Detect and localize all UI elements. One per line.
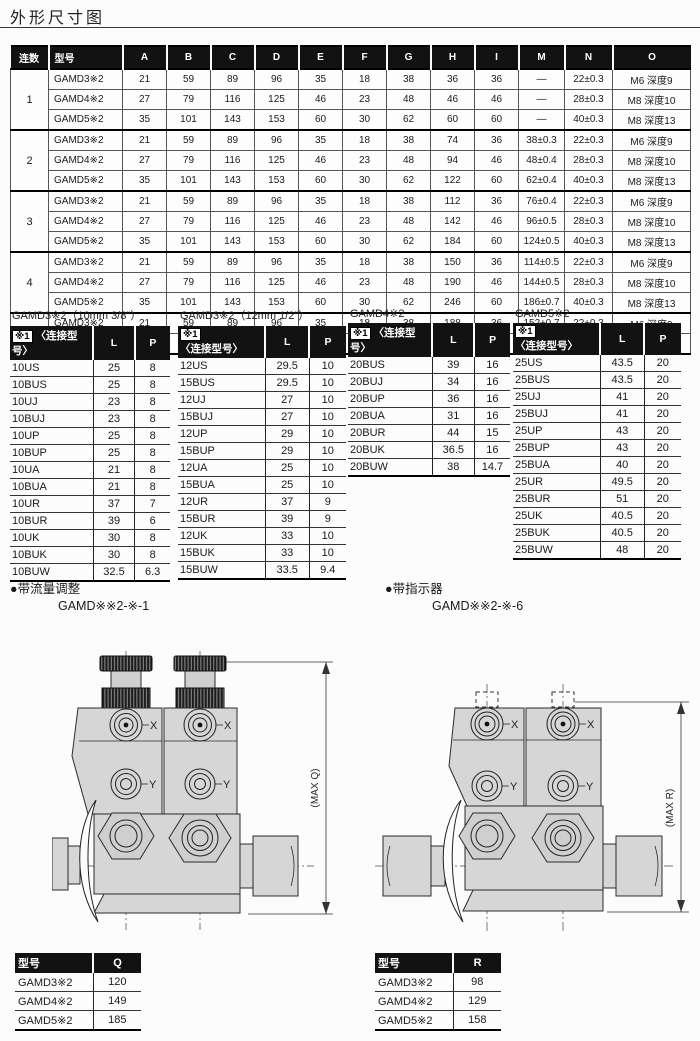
value-l: 29.5 [265,375,309,392]
bottom-row: GAMD5※2158 [375,1011,501,1031]
connector-row: 25BUR5120 [513,491,681,508]
value-p: 10 [309,528,346,545]
value-cell: M8 深度13 [613,110,691,131]
value-p: 16 [474,357,510,374]
connector-table-title: GAMD5※2 [515,307,681,320]
connector-row: 10UA218 [10,462,170,479]
value-cell: 79 [167,90,211,110]
value-cell: 158 [453,1011,501,1031]
value-p: 10 [309,426,346,443]
value-cell: 60 [299,110,343,131]
connector-header-row: ※1〈连接型号〉LP [178,326,346,358]
model-cell: GAMD4※2 [49,273,123,293]
value-p: 10 [309,375,346,392]
connector-model: 25BUA [513,457,600,474]
value-cell: 22±0.3 [565,252,613,273]
col-header-p: P [474,323,510,357]
value-cell: 36 [475,191,519,212]
value-p: 10 [309,443,346,460]
value-p: 10 [309,545,346,562]
svg-text:Y: Y [149,779,157,791]
value-cell: 46 [299,151,343,171]
value-l: 44 [432,425,474,442]
value-p: 8 [135,462,170,479]
connector-model: 10BUP [10,445,93,462]
value-p: 16 [474,408,510,425]
column-header: F [343,46,387,69]
manifold-skirt [463,890,603,911]
value-cell: M6 深度9 [613,130,691,151]
connector-model: 15BUA [178,477,265,494]
value-cell: 62 [387,171,431,192]
connector-row: 15BUP2910 [178,443,346,460]
dim-header: Q [93,953,141,973]
value-cell: 60 [431,110,475,131]
bottom-row: GAMD4※2129 [375,992,501,1011]
main-table-header-row: 连数型号ABCDEFGHIMNO [11,46,691,69]
value-cell: 21 [123,130,167,151]
value-cell: M8 深度10 [613,151,691,171]
value-l: 25 [93,360,135,377]
table-row: GAMD4※227791161254623481424696±0.528±0.3… [11,212,691,232]
connector-row: 12US29.510 [178,358,346,375]
max-r-table: 型号RGAMD3※298GAMD4※2129GAMD5※2158 [375,953,501,1031]
value-cell: 30 [343,171,387,192]
value-cell: 143 [211,171,255,192]
value-p: 8 [135,530,170,547]
value-l: 48 [600,542,644,560]
value-p: 8 [135,445,170,462]
adjust-knob-icon [174,656,226,708]
connector-row: 25BUP4320 [513,440,681,457]
column-header: M [519,46,565,69]
value-cell: 96 [255,69,299,90]
svg-text:X: X [224,720,232,732]
connector-model: 15BUW [178,562,265,580]
table-row: GAMD4※22779116125462348944648±0.428±0.3M… [11,151,691,171]
value-cell: 36 [431,69,475,90]
connector-row: 15BUR399 [178,511,346,528]
connector-model: 15BUJ [178,409,265,426]
value-l: 40 [600,457,644,474]
value-cell: 36 [475,252,519,273]
table-row: 4GAMD3※22159899635183815036114±0.522±0.3… [11,252,691,273]
dim-label-q: (MAX Q) [310,769,321,808]
value-cell: 27 [123,90,167,110]
group-count-cell: 2 [11,130,49,191]
col-header-p: P [135,326,170,360]
value-cell: 153 [255,232,299,253]
connector-row: 20BUW3814.7 [348,459,510,477]
value-cell: 22±0.3 [565,69,613,90]
connector-model: 10BUS [10,377,93,394]
value-l: 37 [265,494,309,511]
value-l: 36.5 [432,442,474,459]
connector-model: 10UP [10,428,93,445]
connector-model: 10UJ [10,394,93,411]
model-cell: GAMD4※2 [15,992,93,1011]
connector-table-title: GAMD4※2 [350,307,510,320]
value-cell: 38±0.3 [519,130,565,151]
value-cell: 143 [211,232,255,253]
value-p: 16 [474,442,510,459]
value-p: 20 [644,525,681,542]
connector-model: 20BUJ [348,374,432,391]
variant-label: 带流量调整 [18,582,81,596]
value-cell: 101 [167,171,211,192]
value-l: 36 [432,391,474,408]
value-p: 20 [644,423,681,440]
value-l: 49.5 [600,474,644,491]
connector-row: 25US43.520 [513,355,681,372]
adjust-knob-icon [100,656,152,708]
connector-row: 10UK308 [10,530,170,547]
drawing-flow-adjust: (MAX Q) [52,648,347,940]
connector-row: 20BUJ3416 [348,374,510,391]
value-cell: 21 [123,191,167,212]
value-cell: 18 [343,130,387,151]
connector-row: 25BUS43.520 [513,372,681,389]
value-p: 7 [135,496,170,513]
value-cell: 116 [211,151,255,171]
column-header: E [299,46,343,69]
value-p: 8 [135,479,170,496]
value-cell: 98 [453,973,501,992]
connector-table: GAMD3※2（12mm 1/2"）※1〈连接型号〉LP12US29.51015… [178,307,346,580]
connector-model: 12UJ [178,392,265,409]
connector-row: 10US258 [10,360,170,377]
value-cell: M8 深度13 [613,232,691,253]
connector-model-header: ※1〈连接型号〉 [513,323,600,355]
col-header-l: L [93,326,135,360]
value-cell: 35 [299,191,343,212]
value-cell: 190 [431,273,475,293]
connector-model: 20BUW [348,459,432,477]
pipe-fitting [616,836,662,896]
connector-table: GAMD5※2※1〈连接型号〉LP25US43.52025BUS43.52025… [513,307,681,560]
value-cell: M8 深度13 [613,171,691,192]
value-p: 10 [309,409,346,426]
bottom-row: GAMD3※298 [375,973,501,992]
value-l: 37 [93,496,135,513]
value-cell: 149 [93,992,141,1011]
value-cell: 18 [343,252,387,273]
connector-model: 15BUK [178,545,265,562]
connector-row: 12UK3310 [178,528,346,545]
connector-model: 25US [513,355,600,372]
value-l: 27 [265,392,309,409]
value-cell: 23 [343,151,387,171]
connector-model: 10BUJ [10,411,93,428]
connector-row: 12UJ2710 [178,392,346,409]
value-cell: 96 [255,130,299,151]
connector-row: 12UR379 [178,494,346,511]
group-count-cell: 4 [11,252,49,313]
connector-row: 15BUW33.59.4 [178,562,346,580]
footnote-ref: ※1 [350,327,371,340]
pipe-fitting [383,836,431,896]
connector-row: 20BUA3116 [348,408,510,425]
value-cell: 59 [167,252,211,273]
value-cell: 46 [475,273,519,293]
connector-model: 12UR [178,494,265,511]
value-cell: M6 深度9 [613,191,691,212]
value-cell: 27 [123,151,167,171]
connector-model: 10UA [10,462,93,479]
value-l: 29.5 [265,358,309,375]
connector-model: 20BUK [348,442,432,459]
value-cell: 60 [299,171,343,192]
value-l: 29 [265,443,309,460]
model-cell: GAMD4※2 [49,90,123,110]
value-l: 31 [432,408,474,425]
connector-row: 25BUW4820 [513,542,681,560]
connector-row: 10BUA218 [10,479,170,496]
bottom-header-row: 型号R [375,953,501,973]
bottom-header-row: 型号Q [15,953,141,973]
value-cell: 89 [211,252,255,273]
connector-model: 10UK [10,530,93,547]
value-cell: 21 [123,69,167,90]
value-cell: 27 [123,273,167,293]
value-cell: 35 [299,130,343,151]
svg-text:X: X [587,719,595,731]
connector-row: 12UP2910 [178,426,346,443]
model-cell: GAMD3※2 [49,191,123,212]
value-cell: 124±0.5 [519,232,565,253]
value-p: 10 [309,477,346,494]
model-cell: GAMD4※2 [49,212,123,232]
connector-model: 12UP [178,426,265,443]
value-cell: 48 [387,273,431,293]
value-cell: 38 [387,191,431,212]
value-cell: 22±0.3 [565,191,613,212]
value-p: 6.3 [135,564,170,582]
value-cell: 79 [167,212,211,232]
value-p: 15 [474,425,510,442]
value-cell: 62±0.4 [519,171,565,192]
value-cell: 38 [387,130,431,151]
value-p: 20 [644,474,681,491]
connector-model: 20BUP [348,391,432,408]
value-cell: 60 [475,232,519,253]
value-cell: 35 [123,171,167,192]
svg-text:Y: Y [586,781,594,793]
value-l: 41 [600,406,644,423]
value-p: 8 [135,360,170,377]
value-p: 16 [474,391,510,408]
value-cell: 76±0.4 [519,191,565,212]
value-cell: M8 深度10 [613,273,691,293]
connector-model: 25BUK [513,525,600,542]
value-cell: 144±0.5 [519,273,565,293]
value-cell: 60 [299,232,343,253]
value-p: 8 [135,428,170,445]
connector-model: 15BUP [178,443,265,460]
value-cell: 36 [475,69,519,90]
value-p: 16 [474,374,510,391]
connector-model: 10BUR [10,513,93,530]
value-cell: M8 深度10 [613,90,691,110]
connector-row: 25UP4320 [513,423,681,440]
bottom-row: GAMD4※2149 [15,992,141,1011]
bottom-row: GAMD3※2120 [15,973,141,992]
value-p: 8 [135,411,170,428]
value-cell: 94 [431,151,475,171]
value-p: 14.7 [474,459,510,477]
value-cell: 40±0.3 [565,110,613,131]
dim-header: R [453,953,501,973]
connector-model: 20BUS [348,357,432,374]
value-l: 33 [265,528,309,545]
col-header-l: L [265,326,309,358]
connector-model: 20BUR [348,425,432,442]
value-cell: 22±0.3 [565,130,613,151]
svg-text:X: X [511,719,519,731]
connector-model: 10US [10,360,93,377]
connector-model: 12UK [178,528,265,545]
bottom-row: GAMD5※2185 [15,1011,141,1031]
value-p: 20 [644,491,681,508]
column-header: B [167,46,211,69]
connector-table: GAMD4※2※1〈连接型号〉LP20BUS391620BUJ341620BUP… [348,307,510,477]
connector-row: 25UJ4120 [513,389,681,406]
connector-model: 25BUR [513,491,600,508]
connector-model: 25UK [513,508,600,525]
value-cell: 184 [431,232,475,253]
value-cell: 89 [211,69,255,90]
value-cell: 96 [255,252,299,273]
value-p: 8 [135,547,170,564]
connector-model: 25UJ [513,389,600,406]
table-row: GAMD4※227791161254623484646—28±0.3M8 深度1… [11,90,691,110]
value-p: 20 [644,372,681,389]
value-cell: 46 [475,212,519,232]
connector-row: 25UK40.520 [513,508,681,525]
value-l: 39 [93,513,135,530]
value-l: 32.5 [93,564,135,582]
model-cell: GAMD5※2 [15,1011,93,1031]
value-cell: 143 [211,110,255,131]
value-cell: 23 [343,90,387,110]
connector-model: 25BUJ [513,406,600,423]
footnote-ref: ※1 [515,325,536,338]
connector-model: 10UR [10,496,93,513]
value-p: 8 [135,377,170,394]
value-cell: 79 [167,273,211,293]
footnote-ref: ※1 [12,330,33,343]
value-l: 40.5 [600,525,644,542]
column-header: 型号 [49,46,123,69]
value-cell: 101 [167,110,211,131]
connector-row: 20BUS3916 [348,357,510,374]
table-row: GAMD5※2351011431536030626060—40±0.3M8 深度… [11,110,691,131]
value-p: 20 [644,457,681,474]
value-cell: 28±0.3 [565,151,613,171]
value-l: 33 [265,545,309,562]
connector-row: 25UR49.520 [513,474,681,491]
value-cell: 28±0.3 [565,90,613,110]
value-l: 33.5 [265,562,309,580]
value-p: 10 [309,460,346,477]
value-l: 25 [265,460,309,477]
model-cell: GAMD3※2 [15,973,93,992]
value-cell: 153 [255,171,299,192]
connector-table-title: GAMD3※2（12mm 1/2"） [180,307,346,323]
value-cell: 153 [255,110,299,131]
connector-model: 15BUR [178,511,265,528]
value-cell: 35 [299,252,343,273]
value-cell: 125 [255,90,299,110]
bullet-icon: ● [10,582,18,596]
svg-text:Y: Y [510,781,518,793]
pipe-fitting [52,838,68,890]
bullet-icon: ● [385,582,393,596]
value-cell: 101 [167,232,211,253]
value-cell: 21 [123,252,167,273]
value-cell: — [519,90,565,110]
value-l: 43 [600,440,644,457]
connector-model-header: ※1〈连接型号〉 [348,323,432,357]
value-l: 23 [93,411,135,428]
value-cell: 89 [211,191,255,212]
value-cell: 59 [167,130,211,151]
value-cell: M8 深度10 [613,212,691,232]
value-p: 20 [644,355,681,372]
value-l: 23 [93,394,135,411]
value-cell: 30 [343,110,387,131]
value-p: 8 [135,394,170,411]
value-cell: 38 [387,69,431,90]
connector-model: 25BUW [513,542,600,560]
value-cell: 125 [255,273,299,293]
drawing-indicator: (MAX R) [375,648,697,940]
value-cell: 23 [343,212,387,232]
connector-row: 10BUJ238 [10,411,170,428]
value-cell: 79 [167,151,211,171]
value-cell: 59 [167,69,211,90]
value-l: 34 [432,374,474,391]
table-row: GAMD5※23510114315360306218460124±0.540±0… [11,232,691,253]
value-l: 21 [93,462,135,479]
value-cell: 18 [343,191,387,212]
connector-row: 12UA2510 [178,460,346,477]
connector-model: 12UA [178,460,265,477]
dim-label-r: (MAX R) [665,789,676,827]
pipe-fitting [603,844,616,888]
table-row: GAMD5※2351011431536030621226062±0.440±0.… [11,171,691,192]
connector-row: 10BUK308 [10,547,170,564]
column-header: D [255,46,299,69]
model-cell: GAMD3※2 [49,252,123,273]
connector-row: 10BUR396 [10,513,170,530]
connector-model: 25UP [513,423,600,440]
break-line [443,800,463,922]
value-p: 9.4 [309,562,346,580]
col-header-l: L [432,323,474,357]
value-cell: 48 [387,212,431,232]
value-cell: 38 [387,252,431,273]
value-cell: 116 [211,90,255,110]
value-cell: 46 [475,151,519,171]
column-header: C [211,46,255,69]
col-header-l: L [600,323,644,355]
connector-row: 15BUK3310 [178,545,346,562]
value-cell: 96 [255,191,299,212]
value-l: 39 [265,511,309,528]
group-count-cell: 1 [11,69,49,130]
group-count-cell: 3 [11,191,49,252]
